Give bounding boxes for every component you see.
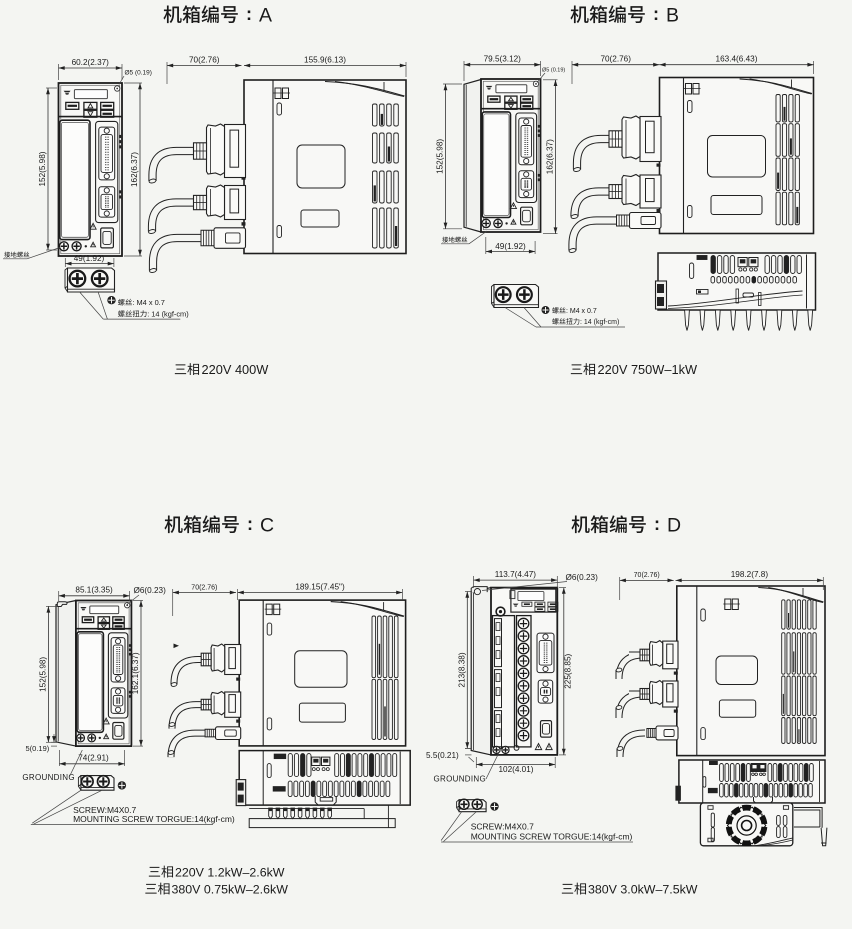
svg-text:GROUNDING: GROUNDING: [434, 775, 486, 784]
svg-text:155.9(6.13): 155.9(6.13): [304, 55, 346, 64]
svg-text:: M4 x 0.7: : M4 x 0.7: [566, 308, 597, 315]
svg-text:70(2.76): 70(2.76): [191, 584, 217, 591]
svg-text:C: C: [260, 515, 274, 537]
svg-text:Ø6(0.23): Ø6(0.23): [566, 573, 599, 582]
svg-text:60.2(2.37): 60.2(2.37): [72, 58, 110, 67]
svg-text:70(2.76): 70(2.76): [634, 572, 660, 579]
svg-text:49(1.92): 49(1.92): [74, 254, 105, 263]
svg-text:GROUNDING: GROUNDING: [22, 773, 74, 782]
svg-text:B: B: [666, 5, 679, 27]
svg-text:85.1(3.35): 85.1(3.35): [75, 586, 113, 595]
svg-text:74(2.91): 74(2.91): [78, 754, 109, 763]
svg-text:162(6.37): 162(6.37): [546, 139, 555, 174]
svg-text:Ø5 (0.19): Ø5 (0.19): [542, 68, 565, 74]
svg-text:: 14 (kgf-cm): : 14 (kgf-cm): [147, 310, 188, 319]
svg-text:49(1.92): 49(1.92): [495, 242, 526, 251]
svg-text:113.7(4.47): 113.7(4.47): [495, 570, 537, 579]
svg-text:5(0.19): 5(0.19): [26, 744, 50, 753]
svg-text::: :: [654, 514, 660, 534]
svg-text:163.4(6.43): 163.4(6.43): [716, 55, 758, 64]
svg-text:Ø5 (0.19): Ø5 (0.19): [125, 70, 152, 77]
svg-text:220V 1.2kW–2.6kW: 220V 1.2kW–2.6kW: [175, 866, 285, 880]
svg-text:A: A: [259, 5, 272, 27]
svg-text:SCREW:M4X0.7: SCREW:M4X0.7: [471, 822, 534, 832]
svg-text:213(8.38): 213(8.38): [457, 652, 466, 687]
svg-text::: :: [247, 514, 253, 534]
svg-text:152(5.98): 152(5.98): [38, 151, 47, 186]
svg-text:220V 750W–1kW: 220V 750W–1kW: [598, 362, 699, 377]
svg-text:Ø6(0.23): Ø6(0.23): [134, 586, 167, 595]
svg-text::: :: [246, 4, 252, 24]
svg-text:79.5(3.12): 79.5(3.12): [484, 55, 522, 64]
svg-text:: M4 x 0.7: : M4 x 0.7: [132, 298, 164, 307]
svg-text:70(2.76): 70(2.76): [189, 55, 220, 64]
svg-text::: :: [653, 4, 659, 24]
svg-text:162.1(6.37): 162.1(6.37): [131, 652, 140, 694]
svg-text:: 14 (kgf-cm): : 14 (kgf-cm): [580, 319, 619, 326]
svg-text:MOUNTING SCREW TORGUE:14(kgf-c: MOUNTING SCREW TORGUE:14(kgf-cm): [73, 814, 235, 824]
svg-text:5.5(0.21): 5.5(0.21): [426, 751, 459, 760]
svg-text:380V 0.75kW–2.6kW: 380V 0.75kW–2.6kW: [172, 883, 289, 897]
svg-text:D: D: [667, 515, 681, 537]
svg-text:380V 3.0kW–7.5kW: 380V 3.0kW–7.5kW: [588, 883, 698, 897]
svg-text:162(6.37): 162(6.37): [130, 152, 139, 187]
svg-text:MOUNTING SCREW TORGUE:14(kgf-c: MOUNTING SCREW TORGUE:14(kgf-cm): [471, 832, 633, 842]
svg-text:70(2.76): 70(2.76): [600, 55, 631, 64]
svg-text:152(5.98): 152(5.98): [38, 657, 47, 692]
svg-text:225(8.85): 225(8.85): [564, 653, 573, 688]
svg-text:198.2(7.8): 198.2(7.8): [731, 570, 769, 579]
svg-text:220V 400W: 220V 400W: [202, 362, 270, 377]
svg-text:152(5.98): 152(5.98): [436, 139, 445, 174]
svg-text:189.15(7.45"): 189.15(7.45"): [295, 582, 345, 591]
svg-text:102(4.01): 102(4.01): [498, 765, 533, 774]
